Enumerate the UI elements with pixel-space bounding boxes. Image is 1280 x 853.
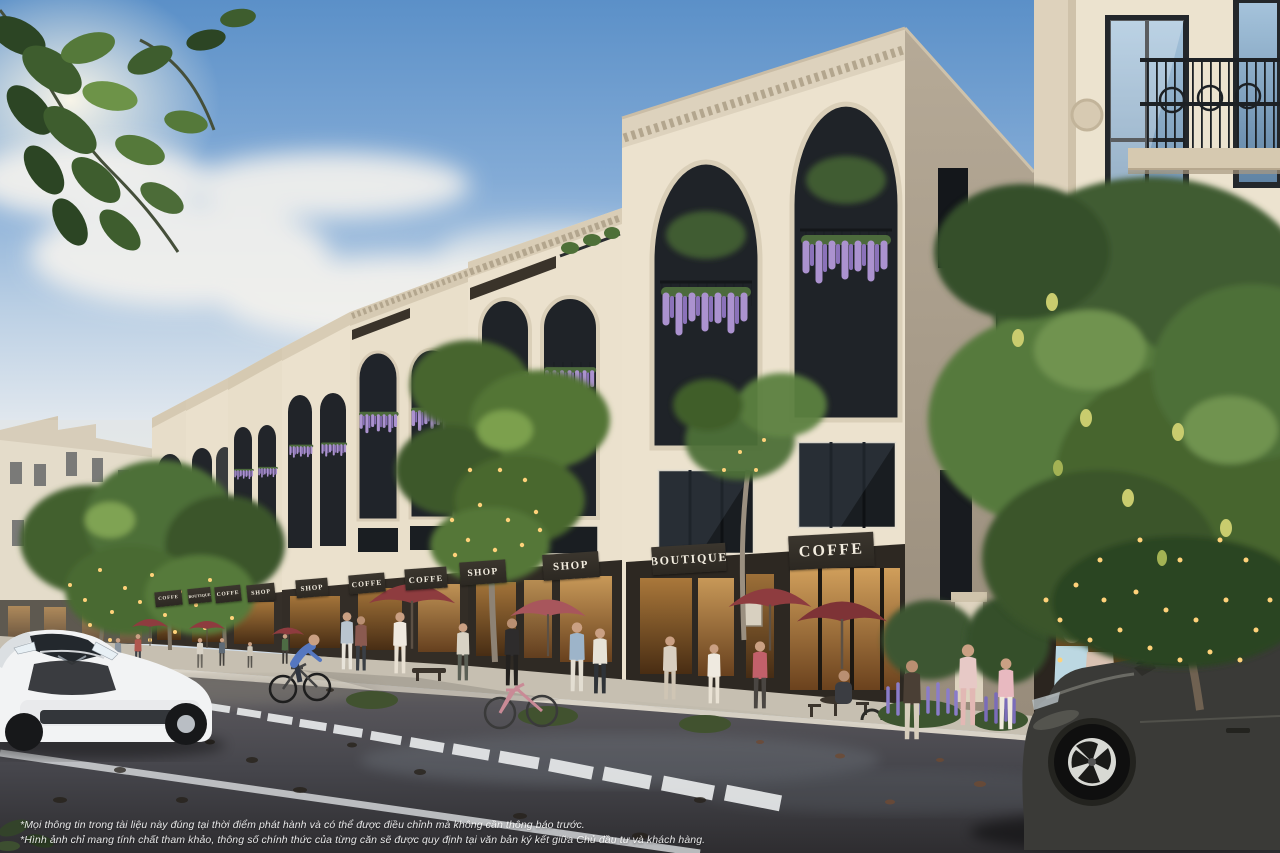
right-building — [1034, 0, 1280, 720]
scene-background — [0, 0, 1280, 853]
disclaimer-line-1: *Mọi thông tin trong tài liệu này đúng t… — [20, 818, 705, 833]
streetscape-render: COFFE BOUTIQUE COFFE SHOP SHOP COFFE COF… — [0, 0, 1280, 853]
shophouse — [282, 312, 350, 659]
disclaimer-line-2: *Hình ảnh chỉ mang tính chất tham khảo, … — [20, 833, 705, 848]
disclaimer: *Mọi thông tin trong tài liệu này đúng t… — [20, 818, 705, 848]
